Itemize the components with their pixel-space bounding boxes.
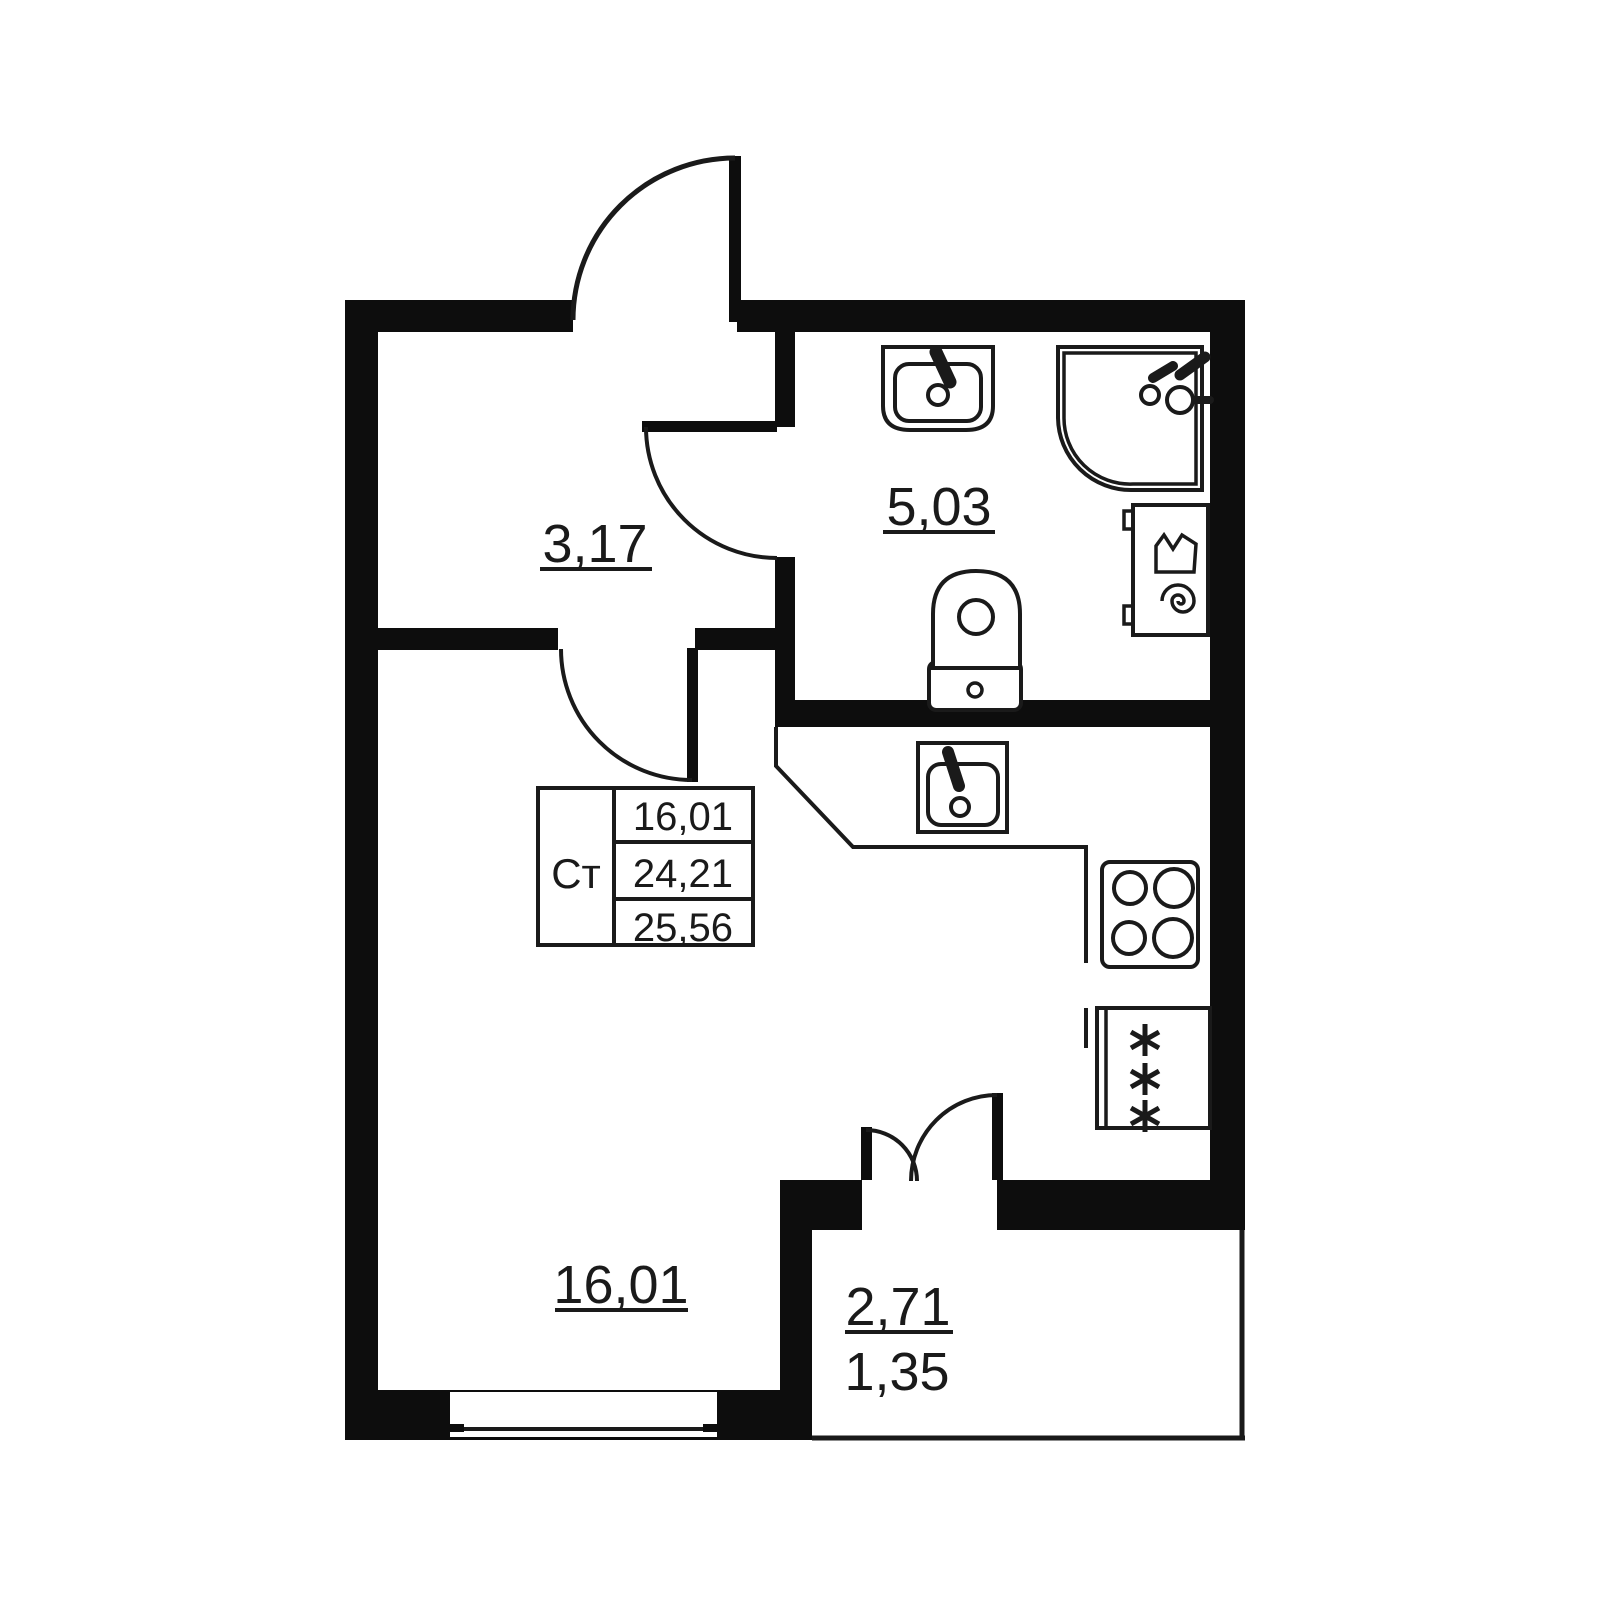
balcony-door-leaf-left xyxy=(861,1127,872,1180)
wall-hall-bottom-right xyxy=(695,628,777,650)
area-table: Ст 16,01 24,21 25,56 xyxy=(538,788,753,950)
unit-total-area-value: 24,21 xyxy=(633,852,733,896)
hall-door-swing-arc xyxy=(561,649,692,780)
window-end-tick-left xyxy=(450,1424,464,1432)
entrance-door-leaf xyxy=(729,156,741,322)
entrance-door xyxy=(573,156,741,322)
wall-balcony-left xyxy=(780,1180,862,1230)
wall-top-right xyxy=(737,300,1245,332)
wall-right xyxy=(1210,300,1245,1230)
balcony-area-label: 2,71 xyxy=(845,1277,950,1337)
shower-drain xyxy=(1141,386,1159,404)
balcony-door-arc-right xyxy=(911,1095,997,1181)
kitchen-sink-icon xyxy=(918,743,1007,832)
living-room-area-label: 16,01 xyxy=(553,1255,688,1315)
hall-door-leaf xyxy=(687,648,698,782)
washing-machine-icon xyxy=(1124,505,1208,635)
wall-left xyxy=(345,300,378,1440)
wall-balcony-right xyxy=(997,1180,1245,1230)
window xyxy=(450,1392,717,1437)
bathroom-door-swing-arc xyxy=(646,427,777,558)
toilet-bowl xyxy=(933,571,1020,668)
balcony-door xyxy=(861,1093,1003,1181)
balcony-door-leaf-right xyxy=(992,1093,1003,1180)
entrance-door-swing-arc xyxy=(573,158,735,320)
stove-icon xyxy=(1102,862,1198,967)
balcony-reduced-area-label: 1,35 xyxy=(844,1342,949,1402)
floor-plan-canvas: Ст 16,01 24,21 25,56 3,17 5,03 16,01 2,7… xyxy=(0,0,1600,1600)
bathroom-door-leaf xyxy=(642,421,777,432)
shower-mixer xyxy=(1167,387,1193,413)
hall-area-label: 3,17 xyxy=(542,514,647,574)
wall-bathroom-left-upper xyxy=(775,332,795,427)
window-end-tick-right xyxy=(703,1424,717,1432)
floor-plan-drawing: Ст 16,01 24,21 25,56 3,17 5,03 16,01 2,7… xyxy=(0,0,1600,1600)
shower-cabin-icon xyxy=(1058,347,1210,490)
kitchen-sink-drain xyxy=(951,798,969,816)
unit-total-with-balcony-value: 25,56 xyxy=(633,906,733,950)
washing-machine-body xyxy=(1133,505,1208,635)
toilet-icon xyxy=(929,571,1021,710)
washbasin-icon xyxy=(883,347,993,430)
wall-hall-bottom-left xyxy=(378,628,558,650)
bathroom-door xyxy=(642,421,777,558)
bathroom-area-label: 5,03 xyxy=(886,477,991,537)
unit-living-area-value: 16,01 xyxy=(633,795,733,839)
wall-top-left xyxy=(345,300,573,332)
hall-door xyxy=(561,648,698,782)
washbasin-drain xyxy=(928,385,948,405)
fridge-icon xyxy=(1097,1008,1210,1132)
unit-type-label: Ст xyxy=(551,850,601,897)
